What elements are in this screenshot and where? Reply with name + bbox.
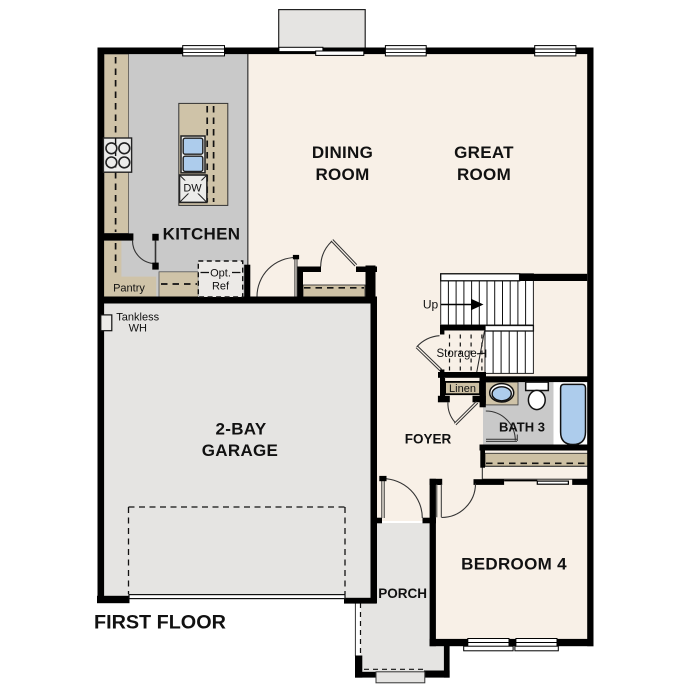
svg-text:ROOM: ROOM <box>457 165 511 184</box>
svg-text:PORCH: PORCH <box>378 586 427 601</box>
svg-text:Linen: Linen <box>449 383 476 395</box>
svg-text:BATH 3: BATH 3 <box>499 420 545 435</box>
svg-text:FIRST FLOOR: FIRST FLOOR <box>94 612 226 634</box>
svg-text:2-BAY: 2-BAY <box>216 420 267 439</box>
svg-text:Ref: Ref <box>212 281 230 293</box>
svg-text:DW: DW <box>183 183 202 195</box>
svg-text:Storage: Storage <box>436 348 476 360</box>
svg-text:DINING: DINING <box>312 143 373 162</box>
svg-text:GARAGE: GARAGE <box>202 441 278 460</box>
svg-text:Pantry: Pantry <box>113 283 145 295</box>
svg-text:Up: Up <box>423 298 439 312</box>
svg-text:Tankless: Tankless <box>116 312 159 324</box>
svg-text:BEDROOM 4: BEDROOM 4 <box>461 555 567 574</box>
svg-text:WH: WH <box>129 323 147 335</box>
svg-text:KITCHEN: KITCHEN <box>163 225 241 244</box>
svg-text:ROOM: ROOM <box>315 165 369 184</box>
svg-text:Opt.: Opt. <box>210 268 231 280</box>
svg-text:GREAT: GREAT <box>454 143 514 162</box>
svg-text:FOYER: FOYER <box>405 432 452 447</box>
